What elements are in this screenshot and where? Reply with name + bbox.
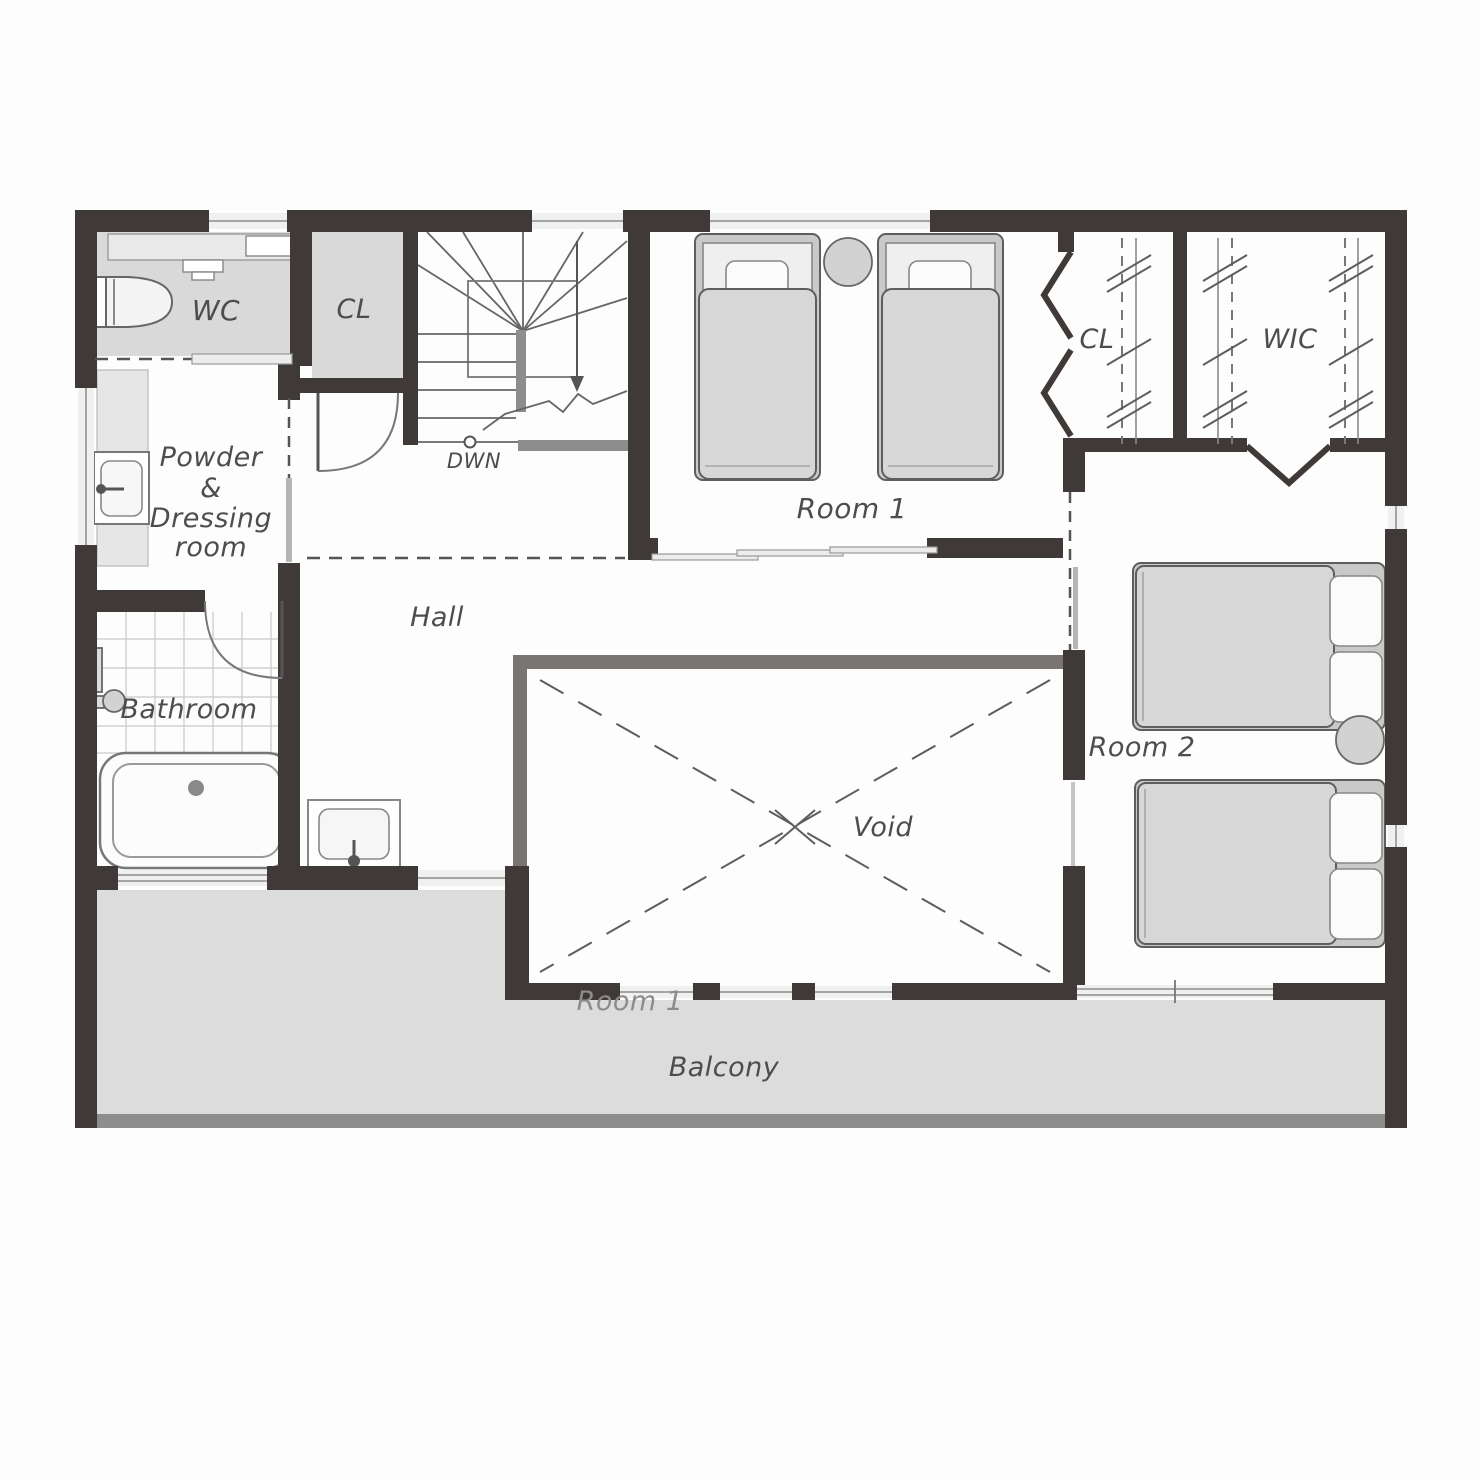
room1-below-void-label: Room 1 bbox=[577, 986, 684, 1017]
wc-faucet bbox=[192, 272, 214, 280]
window bbox=[1388, 825, 1404, 847]
hall-label: Hall bbox=[410, 602, 464, 633]
window bbox=[532, 213, 623, 229]
blanket bbox=[1136, 566, 1334, 727]
powder-room-label-line3: Dressing bbox=[150, 503, 272, 534]
sliding-glass-door bbox=[1077, 980, 1273, 1003]
balcony-label: Balcony bbox=[669, 1052, 780, 1083]
closet-rod-symbols bbox=[1107, 238, 1373, 444]
room1-sliding-doors bbox=[652, 547, 937, 560]
vanity-sink bbox=[94, 452, 149, 524]
stairs-down-arrow-icon bbox=[570, 241, 584, 392]
window bbox=[710, 213, 930, 229]
pillow bbox=[1330, 793, 1382, 863]
powder-room-area bbox=[94, 370, 149, 566]
window bbox=[815, 986, 892, 998]
room1-label: Room 1 bbox=[797, 492, 908, 525]
blanket bbox=[699, 289, 816, 479]
closet-rod bbox=[1329, 238, 1373, 444]
powder-room-label-line2: & bbox=[200, 473, 222, 504]
window bbox=[418, 870, 505, 886]
bed-double-2 bbox=[1135, 780, 1385, 947]
window bbox=[209, 213, 287, 229]
wc-label: WC bbox=[192, 294, 240, 327]
closet-right-label: CL bbox=[1080, 324, 1115, 355]
pillow bbox=[1330, 869, 1382, 939]
stair-half-wall bbox=[518, 440, 628, 451]
bathroom-tile-grid bbox=[97, 612, 278, 753]
balcony-parapet bbox=[97, 1114, 1385, 1128]
void-label: Void bbox=[853, 812, 913, 843]
window bbox=[78, 388, 94, 545]
powder-sliding-door bbox=[286, 398, 292, 562]
bed-twin-2 bbox=[878, 234, 1003, 480]
closet-top-label: CL bbox=[337, 294, 372, 325]
stair-start-marker bbox=[465, 437, 476, 448]
wic-label: WIC bbox=[1262, 324, 1317, 355]
side-table bbox=[824, 238, 872, 286]
blanket bbox=[882, 289, 999, 479]
toilet bbox=[90, 277, 172, 327]
void-area bbox=[513, 655, 1075, 972]
wc-cabinet bbox=[246, 236, 293, 256]
blanket bbox=[1138, 783, 1336, 944]
closet-door-swing bbox=[318, 393, 398, 471]
wic-bifold-door bbox=[1247, 446, 1330, 483]
window bbox=[720, 986, 792, 998]
stair-break-line bbox=[483, 391, 627, 430]
pillow bbox=[1330, 576, 1382, 646]
stair-stringer bbox=[516, 330, 526, 412]
wc-faucet-base bbox=[183, 260, 223, 272]
room2-label: Room 2 bbox=[1089, 732, 1196, 763]
bathroom-label: Bathroom bbox=[120, 694, 257, 725]
floor-plan-drawing: WC CL DWN Room 1 CL WIC Powder & Dressin… bbox=[0, 0, 1480, 1480]
powder-room-label-line1: Powder bbox=[160, 442, 264, 473]
drain bbox=[188, 780, 204, 796]
void-wall-top bbox=[513, 655, 1075, 669]
bathroom-area bbox=[86, 612, 293, 868]
pillow bbox=[1330, 652, 1382, 722]
room1-furniture bbox=[695, 234, 1003, 480]
closet-rod bbox=[1203, 238, 1247, 444]
floor-plan-page: WC CL DWN Room 1 CL WIC Powder & Dressin… bbox=[0, 0, 1480, 1480]
window bbox=[118, 870, 267, 886]
hall-sink bbox=[308, 800, 400, 874]
closet-bifold-door bbox=[1044, 252, 1071, 436]
window bbox=[1388, 506, 1404, 529]
powder-room-label-line4: room bbox=[175, 532, 247, 563]
bathtub bbox=[100, 753, 293, 868]
stairs-down-label: DWN bbox=[447, 449, 501, 473]
bed-double-1 bbox=[1133, 563, 1385, 730]
staircase bbox=[418, 232, 628, 451]
void-wall-left bbox=[513, 655, 527, 868]
side-table bbox=[1336, 716, 1384, 764]
bed-twin-1 bbox=[695, 234, 820, 480]
